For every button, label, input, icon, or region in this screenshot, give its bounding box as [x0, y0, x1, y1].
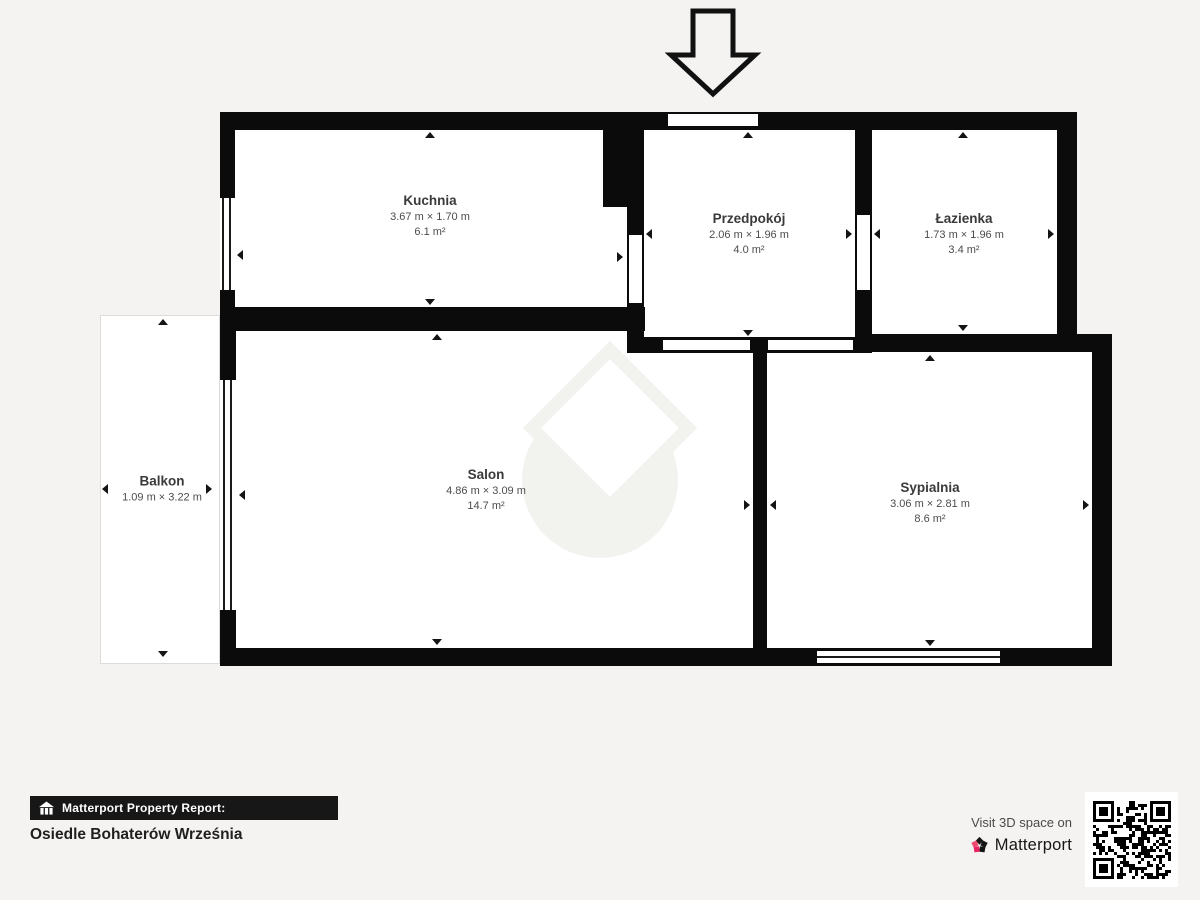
dimension-marker-down [743, 330, 753, 336]
room-label-salon: Salon 4.86 m × 3.09 m 14.7 m² [446, 466, 526, 514]
wall-lazienka-bottom [868, 334, 1112, 352]
room-area: 4.0 m² [709, 243, 789, 258]
room-dimensions: 2.06 m × 1.96 m [709, 228, 789, 243]
dimension-marker-right [846, 229, 852, 239]
dimension-marker-left [237, 250, 243, 260]
property-name: Osiedle Bohaterów Września [30, 826, 242, 844]
sypialnia-window-mullion [817, 656, 1000, 658]
room-label-przedpokoj: Przedpokój 2.06 m × 1.96 m 4.0 m² [709, 210, 789, 258]
room-dimensions: 3.06 m × 2.81 m [890, 497, 970, 512]
room-dimensions: 3.67 m × 1.70 m [390, 210, 470, 225]
room-label-sypialnia: Sypialnia 3.06 m × 2.81 m 8.6 m² [890, 479, 970, 527]
dimension-marker-down [958, 325, 968, 331]
room-name: Przedpokój [709, 210, 789, 228]
sypialnia-door-opening [768, 340, 853, 350]
report-banner-label: Matterport Property Report: [62, 801, 225, 815]
report-banner: Matterport Property Report: [30, 796, 338, 820]
room-dimensions: 1.73 m × 1.96 m [924, 228, 1004, 243]
qr-code[interactable] [1085, 792, 1178, 887]
dimension-marker-down [432, 639, 442, 645]
dimension-marker-up [958, 132, 968, 138]
balcony-window-mullion [223, 380, 225, 610]
room-dimensions: 4.86 m × 3.09 m [446, 484, 526, 499]
dimension-marker-up [425, 132, 435, 138]
wall-salon-bottom [220, 648, 767, 666]
dimension-marker-down [925, 640, 935, 646]
dimension-marker-up [158, 319, 168, 325]
report-house-icon [39, 801, 54, 815]
matterport-wordmark: Matterport [995, 836, 1072, 855]
dimension-marker-up [925, 355, 935, 361]
room-dimensions: 1.09 m × 3.22 m [122, 491, 202, 506]
wall-salon-sypialnia [753, 337, 767, 666]
room-label-balkon: Balkon 1.09 m × 3.22 m [122, 473, 202, 506]
dimension-marker-down [158, 651, 168, 657]
dimension-marker-left [102, 484, 108, 494]
entrance-door-opening [668, 114, 758, 126]
room-name: Kuchnia [390, 192, 470, 210]
visit-text: Visit 3D space on [971, 814, 1072, 832]
room-name: Łazienka [924, 210, 1004, 228]
dimension-marker-left [874, 229, 880, 239]
wall-kuchnia-stub [603, 112, 630, 207]
matterport-logo-icon [969, 835, 990, 856]
dimension-marker-up [743, 132, 753, 138]
wall-sypialnia-right [1092, 334, 1112, 664]
kuchnia-window-mullion [222, 198, 224, 290]
qr-code-pattern [1093, 801, 1171, 879]
dimension-marker-right [1048, 229, 1054, 239]
dimension-marker-down [425, 299, 435, 305]
entrance-arrow-icon [660, 8, 766, 98]
dimension-marker-right [206, 484, 212, 494]
wall-kuchnia-salon [220, 307, 645, 331]
balcony-window-mullion [230, 380, 232, 610]
dimension-marker-right [1083, 500, 1089, 510]
dimension-marker-left [770, 500, 776, 510]
salon-door-opening [663, 340, 750, 350]
wall-lazienka-right [1057, 112, 1077, 352]
room-name: Sypialnia [890, 479, 970, 497]
dimension-marker-up [432, 334, 442, 340]
matterport-brand: Matterport [969, 835, 1072, 856]
kuchnia-window-mullion [229, 198, 231, 290]
room-area: 3.4 m² [924, 243, 1004, 258]
room-label-kuchnia: Kuchnia 3.67 m × 1.70 m 6.1 m² [390, 192, 470, 240]
wall-top [220, 112, 1077, 130]
dimension-marker-left [646, 229, 652, 239]
lazienka-door-opening [857, 215, 870, 290]
room-area: 6.1 m² [390, 225, 470, 240]
dimension-marker-left [239, 490, 245, 500]
room-label-lazienka: Łazienka 1.73 m × 1.96 m 3.4 m² [924, 210, 1004, 258]
kuchnia-door-opening [629, 235, 642, 303]
visit-3d-link[interactable]: Visit 3D space on Matterport [900, 814, 1072, 856]
room-name: Balkon [122, 473, 202, 491]
room-name: Salon [446, 466, 526, 484]
dimension-marker-right [744, 500, 750, 510]
matterport-watermark-icon [510, 340, 710, 570]
room-area: 8.6 m² [890, 512, 970, 527]
room-area: 14.7 m² [446, 499, 526, 514]
dimension-marker-right [617, 252, 623, 262]
